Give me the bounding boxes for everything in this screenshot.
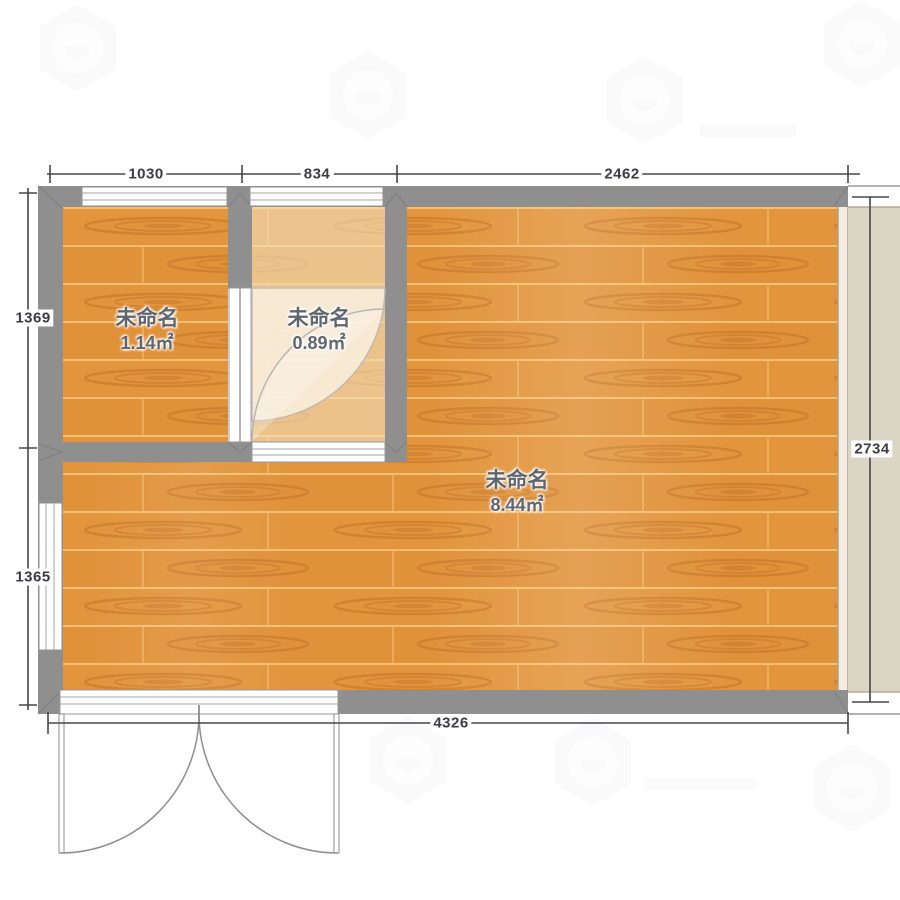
room-2-area: 0.89㎡	[288, 332, 351, 354]
room-2-name: 未命名	[288, 306, 351, 332]
dimension-label-top-2: 834	[301, 166, 334, 183]
floor-plan: 1030 834 2462 1369 1365 2734 4326 未命名 1.…	[0, 0, 900, 900]
room-label-1[interactable]: 未命名 1.14㎡	[116, 306, 179, 354]
room-1-area: 1.14㎡	[116, 332, 179, 354]
door-main-entrance[interactable]	[59, 690, 339, 853]
dimension-label-left-1: 1369	[12, 310, 53, 327]
door-main-left-leaf	[59, 714, 64, 853]
door-main-left-arc	[60, 714, 199, 853]
dimension-label-top-1: 1030	[125, 166, 166, 183]
room-label-main[interactable]: 未命名 8.44㎡	[486, 468, 549, 516]
dimension-label-right-1: 2734	[851, 441, 892, 458]
floor-plan-drawing	[0, 0, 900, 900]
room-1-name: 未命名	[116, 306, 179, 332]
door-main-right-arc	[199, 714, 338, 853]
wall-room2-right	[385, 207, 407, 462]
dimension-label-bottom-1: 4326	[430, 715, 471, 732]
door-room2-opening	[252, 442, 385, 462]
dimension-label-left-2: 1365	[12, 569, 53, 586]
window-top-room2[interactable]	[250, 187, 383, 206]
window-room1-room2[interactable]	[229, 288, 251, 442]
window-top-room1[interactable]	[82, 187, 227, 206]
floor-sheen-2	[90, 462, 290, 690]
dimension-label-top-3: 2462	[601, 166, 642, 183]
room-main-name: 未命名	[486, 468, 549, 494]
room-label-2[interactable]: 未命名 0.89㎡	[288, 306, 351, 354]
balcony-slider[interactable]	[838, 207, 848, 690]
door-main-right-leaf	[334, 714, 339, 853]
floor-sheen	[430, 207, 730, 690]
wall-room1-room2	[228, 207, 252, 289]
room-main-area: 8.44㎡	[486, 494, 549, 516]
